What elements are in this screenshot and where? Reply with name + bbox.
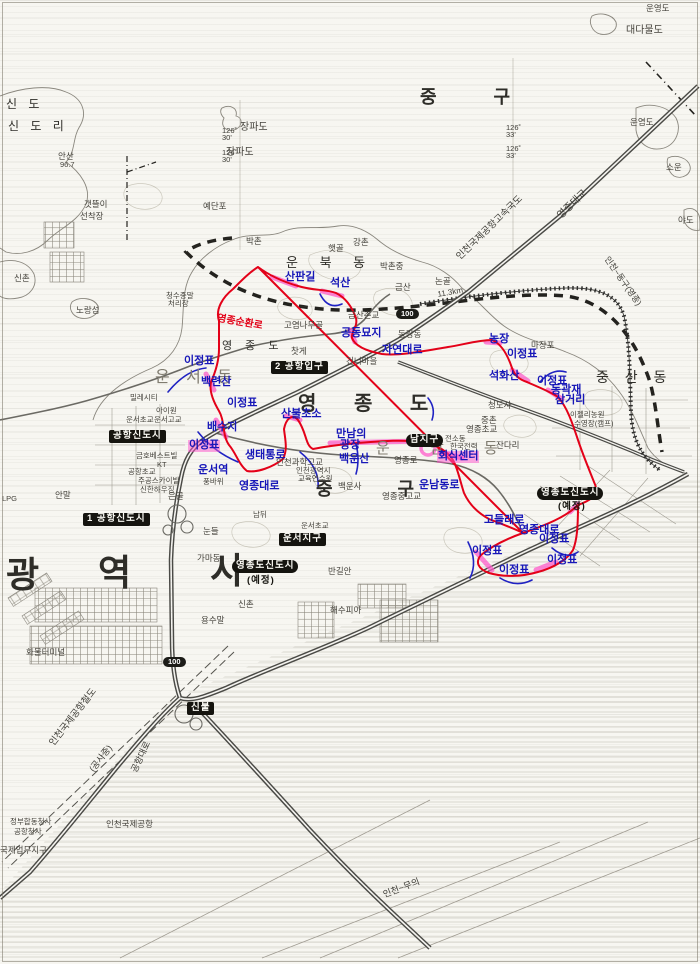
place-label: 운서고교 [154, 416, 182, 424]
route-annotation-label: 배수지 [207, 422, 237, 434]
place-label: 운염도 [630, 118, 653, 127]
place-label: 안말 [55, 491, 71, 500]
route-annotation-label: 산판길 [285, 272, 315, 284]
area-box-label: 공항신도시 [109, 430, 166, 443]
place-label: 동강동 [398, 330, 421, 339]
area-box-label: 영종도신도시 [537, 487, 603, 500]
route-annotation-label: 이정표 [499, 565, 529, 577]
place-label: 은골 [168, 492, 184, 501]
place-label: 영종로 [394, 456, 417, 465]
area-box-label: 영종도신도시 [232, 560, 298, 573]
district-label: 광 [6, 556, 39, 594]
district-label: 중 산 동 [596, 370, 672, 385]
route-annotation-label: 운남동로 [419, 480, 459, 492]
route-annotation-label: 석산 [330, 278, 350, 290]
route-annotation-label: 백련산 [201, 377, 231, 389]
place-label: 처리장 [168, 300, 189, 308]
area-box-label: 남지구 [406, 434, 443, 447]
place-label: 금산 [395, 283, 411, 292]
route-annotation-label: 회식센터 [437, 451, 479, 463]
road-name-red-label: 영종순환로 [216, 314, 263, 332]
place-label: 금산촌교 [348, 311, 379, 320]
place-label: LPG [2, 495, 17, 503]
road-name-label: 인천국제공항철도 [48, 687, 99, 748]
place-label: 갯뜰이 [84, 200, 107, 209]
place-label: 96.7 [60, 161, 75, 169]
coordinate-label: 126˚ 33' [506, 124, 521, 138]
road-name-label: 인천~무의 [382, 877, 421, 900]
place-label: 공항초교 [128, 468, 156, 476]
place-label: 영종초교 [466, 425, 497, 434]
route-annotation-label: 이정표 [507, 349, 537, 361]
coordinate-label: 126˚ 30' [222, 127, 237, 141]
route-annotation-label: 삼거리 [555, 395, 585, 407]
place-label: KT [157, 461, 167, 469]
coordinate-label: 126˚ 33' [506, 145, 521, 159]
place-label: 가마동 [197, 554, 220, 563]
route-number-badge: 100 [396, 309, 419, 319]
road-name-label: 영종대교 [556, 188, 590, 221]
place-label: 박촌 [246, 237, 262, 246]
route-annotation-label: 이정표 [227, 398, 257, 410]
route-number-badge: 100 [163, 657, 186, 667]
place-label: 신촌 [238, 600, 254, 609]
place-label: 잔다리 [496, 441, 519, 450]
place-label: 박촌중 [380, 262, 403, 271]
label-layer: 중 구운 북 동영 종 도영 종 도운 서 동운 남 동중 산 동중 구광역시신… [0, 0, 700, 964]
road-name-label: 인천국제공항고속국도 [455, 194, 525, 262]
place-label: 신촌 [14, 274, 30, 283]
coordinate-label: 126˚ 30' [222, 149, 237, 163]
place-label: 밀레시티 [130, 394, 158, 402]
district-label: 신 도 리 [8, 120, 68, 133]
route-annotation-label: 석화산 [489, 371, 519, 383]
place-label: 공항청사 [14, 828, 42, 836]
place-label: 건너마을 [346, 357, 377, 366]
route-annotation-label: 영종대로 [239, 481, 279, 493]
place-label: 국제업무지구 [0, 846, 47, 855]
place-label: 운서초교 [126, 416, 154, 424]
place-label: 마장포 [531, 341, 554, 350]
place-label: 논골 [435, 277, 451, 286]
place-label: 아이원 [156, 407, 177, 415]
place-label: 장파도 [240, 123, 268, 134]
place-label: 운서초교 [301, 522, 329, 530]
route-annotation-label: 이정표 [188, 440, 220, 452]
place-label: 인천국제공항 [106, 820, 153, 829]
route-annotation-label: 백운산 [339, 454, 369, 466]
place-label: 찻게 [291, 347, 307, 356]
place-label: 백운사 [338, 482, 361, 491]
district-label: 중 구 [420, 88, 536, 107]
place-label: 소운 [666, 163, 682, 172]
area-sub-label: (예정) [558, 502, 586, 512]
area-box-label: 1 공항신도시 [83, 513, 150, 526]
route-annotation-label: 이정표 [547, 555, 577, 567]
place-label: 남뒤 [253, 511, 267, 519]
area-sub-label: (예정) [247, 576, 275, 586]
place-label: 눈들 [203, 527, 219, 536]
place-label: 금호베스트빌 [136, 452, 177, 460]
place-label: 화물터미널 [26, 648, 65, 657]
district-label: 운 북 동 [286, 256, 374, 270]
place-label: 정부합동청사 [10, 818, 51, 826]
district-label: 역 [98, 554, 131, 592]
place-label: 햇골 [328, 244, 344, 253]
area-box-label: 운서지구 [279, 533, 326, 546]
road-name-label: 11.3km [437, 287, 464, 300]
scanned-topographic-map: 중 구운 북 동영 종 도영 종 도운 서 동운 남 동중 산 동중 구광역시신… [0, 0, 700, 964]
route-annotation-label: 이정표 [472, 546, 502, 558]
place-label: 예단포 [203, 202, 226, 211]
route-annotation-label: 광장 [340, 440, 360, 452]
place-label: 운영도 [646, 4, 669, 13]
route-annotation-label: 자연대로 [382, 345, 422, 357]
place-label: 노랑섬 [76, 306, 99, 315]
place-label: 영종중고교 [382, 492, 421, 501]
district-label: 신 도 [6, 98, 43, 111]
place-label: 반길안 [328, 567, 351, 576]
route-annotation-label: 운서역 [198, 465, 228, 477]
place-label: 이젤리농원 [570, 411, 605, 419]
road-name-label: 공항대로 [130, 740, 153, 774]
place-label: 풍바위 [203, 478, 224, 486]
place-label: 고염나무골 [284, 321, 323, 330]
place-label: 교육연수원 [298, 475, 333, 483]
place-label: 수영장(캠프) [574, 420, 614, 428]
area-box-label: 2 공항입구 [271, 361, 328, 374]
place-label: 야도 [678, 216, 694, 225]
place-label: 주공스카이빌 [138, 477, 179, 485]
route-annotation-label: 공동묘지 [341, 328, 381, 340]
place-label: 강촌 [353, 238, 369, 247]
place-label: 용수말 [201, 616, 224, 625]
route-annotation-label: 산불초소 [281, 409, 321, 421]
place-label: 대다물도 [626, 26, 663, 37]
route-annotation-label: 이정표 [184, 356, 214, 368]
district-label: 영 종 도 [222, 341, 283, 353]
route-annotation-label: 이정표 [539, 534, 569, 546]
place-label: 청도사 [488, 401, 511, 410]
place-label: 선착장 [80, 212, 103, 221]
route-annotation-label: 농장 [489, 334, 509, 346]
road-name-label: (공사중) [88, 744, 114, 774]
place-label: 해수피아 [330, 606, 361, 615]
road-name-label: 인천~동구(영종) [603, 255, 643, 307]
area-box-label: 신불 [187, 702, 214, 715]
place-label: 한국전력 [450, 443, 478, 451]
